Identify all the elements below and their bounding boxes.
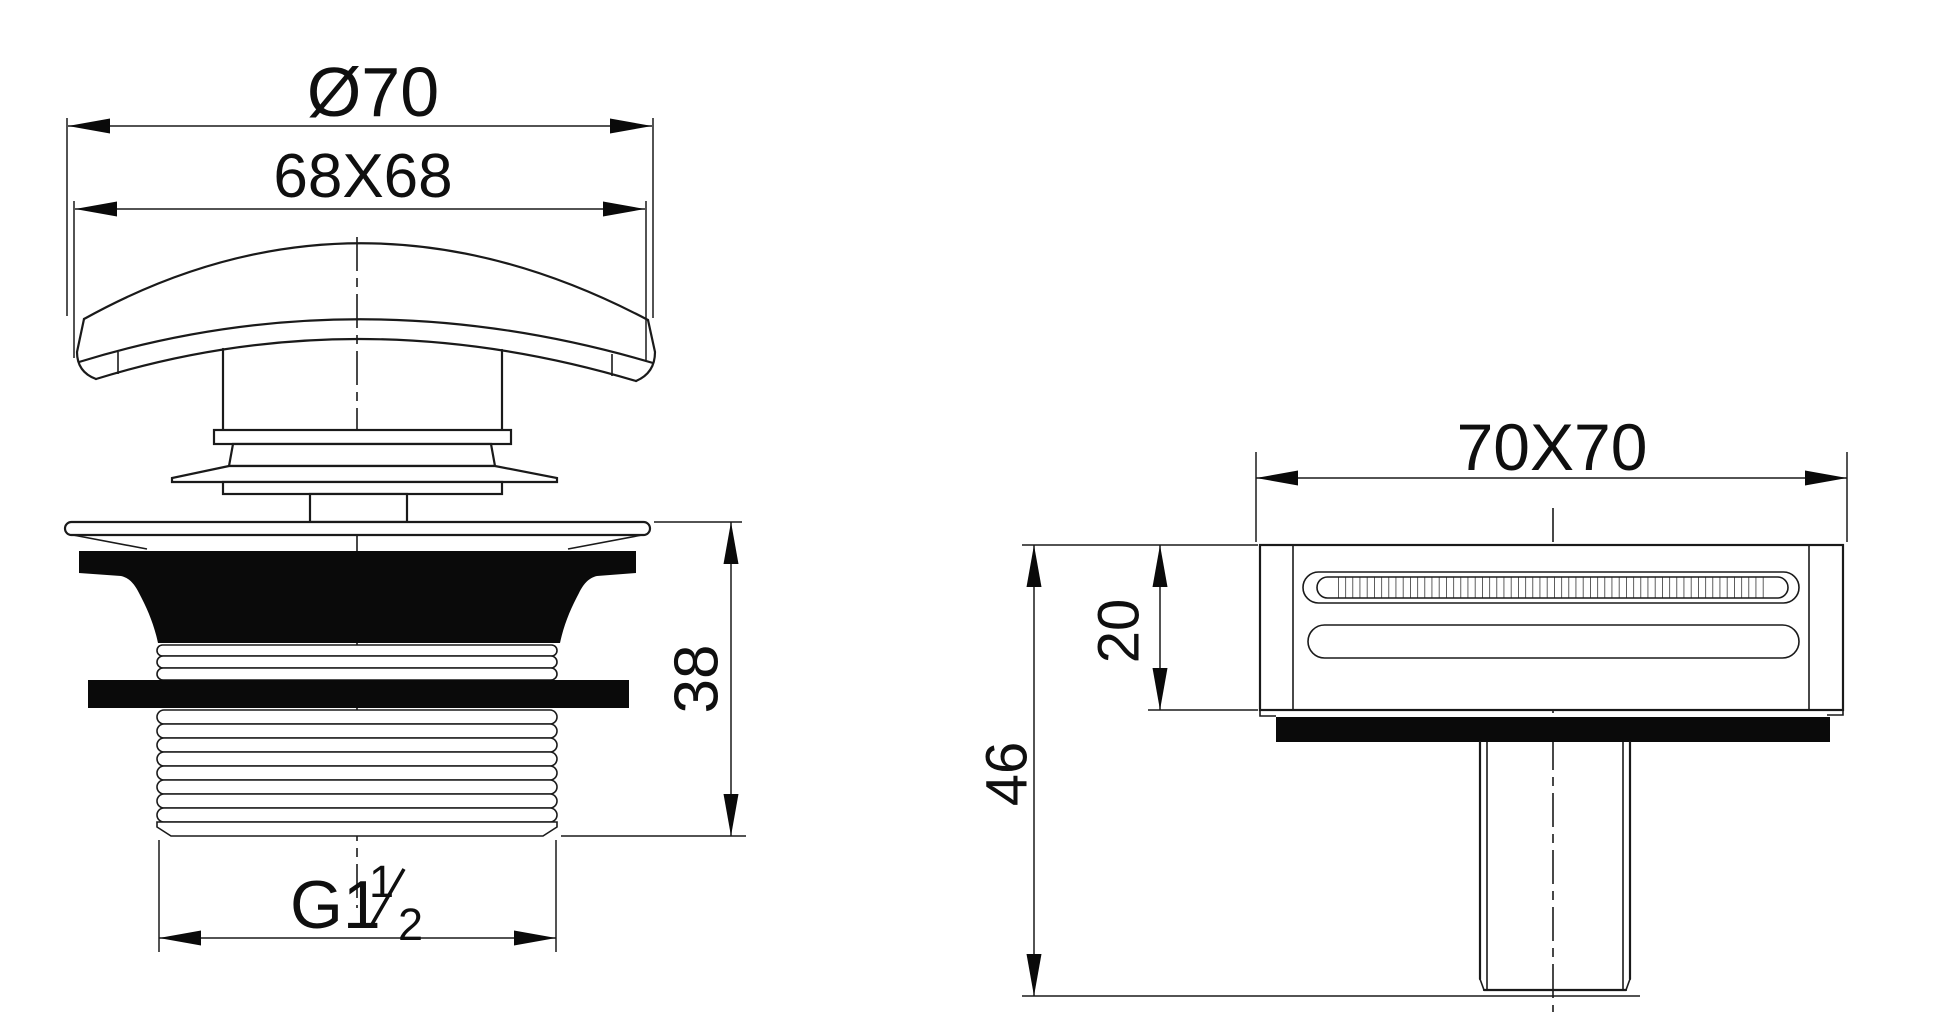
thread-band bbox=[157, 710, 557, 724]
stem-collar bbox=[229, 444, 495, 466]
dim-label-diameter: Ø70 bbox=[307, 53, 439, 131]
seal-cone bbox=[172, 466, 557, 482]
thread-band bbox=[157, 794, 557, 808]
dim-label-thread-numerator: 1 bbox=[369, 856, 394, 907]
thread-band bbox=[157, 752, 557, 766]
grate-hatching bbox=[1338, 577, 1767, 598]
thread-band bbox=[157, 656, 557, 668]
flange-rim bbox=[65, 522, 650, 535]
dim-label-overall-square: 70X70 bbox=[1457, 410, 1648, 484]
stem-plate bbox=[214, 430, 511, 444]
technical-drawing-canvas: Ø70 68X68 bbox=[0, 0, 1946, 1027]
seal-ring bbox=[223, 482, 502, 494]
dim-label-cap-square: 68X68 bbox=[273, 142, 452, 211]
thread-band bbox=[157, 668, 557, 680]
dim-label-thread-denominator: 2 bbox=[398, 899, 423, 950]
overflow-slot bbox=[1308, 625, 1799, 658]
thread-band bbox=[157, 808, 557, 822]
thread-band bbox=[157, 780, 557, 794]
guide-block bbox=[310, 494, 407, 522]
thread-band bbox=[157, 738, 557, 752]
dim-label-grate-depth: 20 bbox=[1087, 599, 1152, 664]
thread-band bbox=[157, 766, 557, 780]
dim-label-overall-height: 46 bbox=[975, 742, 1040, 807]
plan-gasket-bar bbox=[1276, 717, 1830, 742]
grate-slot bbox=[1303, 572, 1799, 603]
upper-threads bbox=[157, 645, 557, 680]
thread-band bbox=[157, 645, 557, 656]
thread-band bbox=[157, 724, 557, 738]
lower-threads bbox=[157, 710, 557, 836]
sealing-washer bbox=[88, 680, 629, 708]
thread-end-chamfer bbox=[157, 822, 557, 836]
upper-gasket bbox=[79, 551, 636, 643]
dim-label-body-height: 38 bbox=[663, 645, 732, 714]
dim-label-thread-size: G1 bbox=[290, 867, 381, 943]
drain-fitting-drawing: Ø70 68X68 bbox=[0, 0, 1946, 1027]
